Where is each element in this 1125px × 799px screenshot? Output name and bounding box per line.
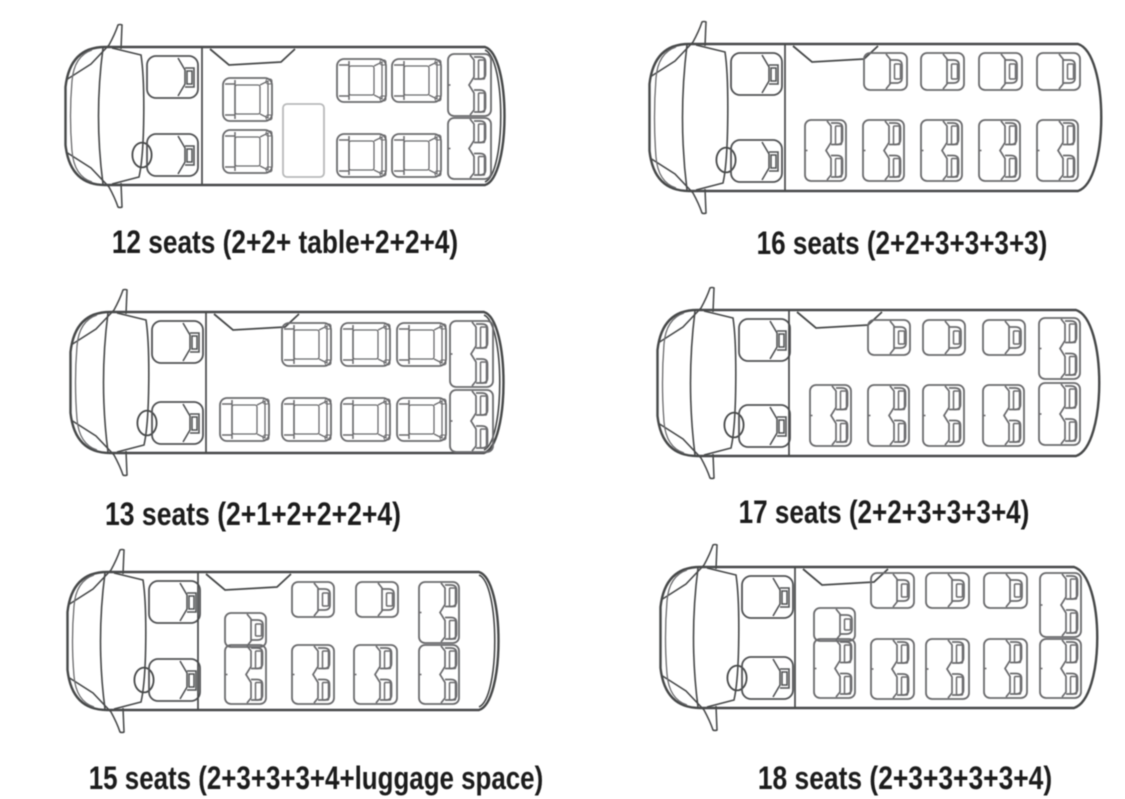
svg-text:17 seats (2+2+3+3+3+4): 17 seats (2+2+3+3+3+4): [739, 496, 1030, 531]
svg-text:12 seats (2+2+ table+2+2+4): 12 seats (2+2+ table+2+2+4): [112, 226, 458, 261]
svg-text:16 seats (2+2+3+3+3+3): 16 seats (2+2+3+3+3+3): [757, 227, 1048, 262]
svg-text:18 seats (2+3+3+3+3+4): 18 seats (2+3+3+3+3+4): [758, 761, 1052, 797]
svg-text:13 seats (2+1+2+2+2+4): 13 seats (2+1+2+2+2+4): [105, 497, 401, 533]
svg-text:15 seats (2+3+3+3+4+luggage sp: 15 seats (2+3+3+3+4+luggage space): [89, 762, 543, 797]
